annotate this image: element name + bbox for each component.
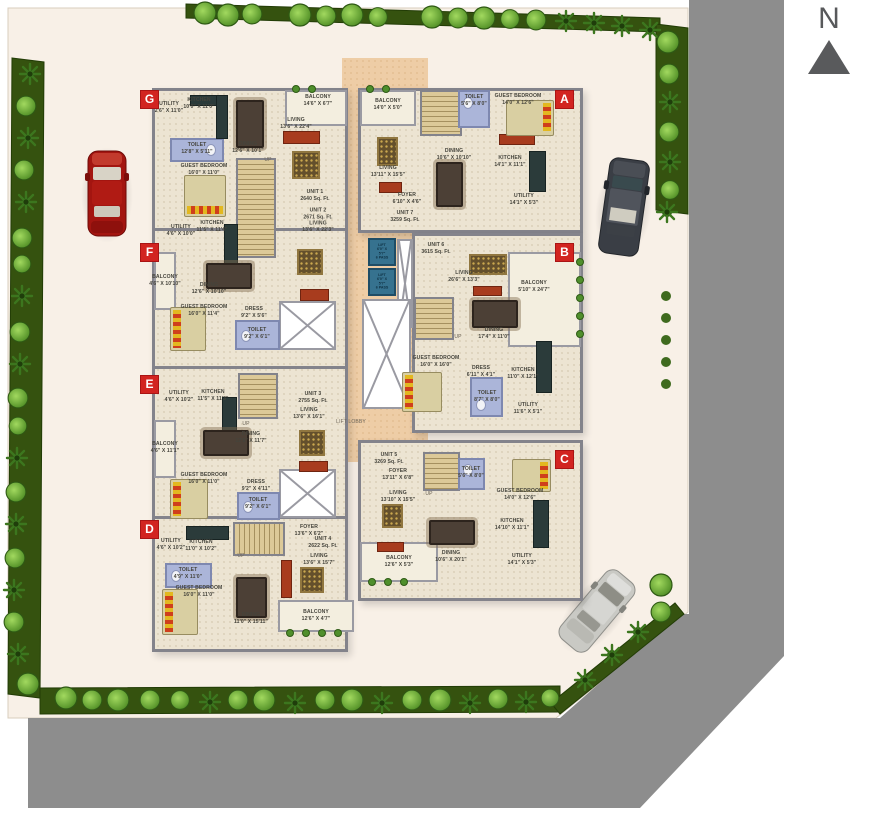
plant (576, 258, 584, 266)
label-b-dress: DRESS 6'11" X 4'1" (467, 366, 495, 379)
plant (384, 578, 392, 586)
living-rug (297, 249, 323, 275)
dining-table (429, 520, 475, 545)
unit-badge-d: D (140, 520, 159, 539)
balcony-b (508, 252, 581, 347)
sofa (300, 289, 329, 301)
label-d-kitchen: KITCHEN 11'0" X 10'2" (185, 540, 216, 553)
label-c-unit: UNIT 5 3269 Sq. Ft. (374, 453, 403, 466)
label-a-toilet: TOILET 5'6" X 8'0" (461, 95, 487, 108)
label-a-dining: DINING 10'6" X 10'10" (437, 149, 472, 162)
label-g-living: LIVING 13'6" X 22'4" (280, 118, 312, 131)
staircase-gf (236, 158, 276, 258)
label-c-living: LIVING 13'10" X 15'5" (381, 491, 416, 504)
label-e-utility: UTILITY 4'6" X 10'2" (165, 391, 194, 404)
dining-table (436, 162, 463, 207)
plant (382, 85, 390, 93)
kitchen-counter (533, 500, 549, 548)
label-c-foyer: FOYER 13'11" X 6'8" (382, 469, 413, 482)
label-d-toilet: TOILET 4'9" X 11'0" (174, 568, 202, 581)
label-f-dress: DRESS 9'2" X 5'6" (241, 307, 267, 320)
label-b-dining: DINING 17'4" X 11'0" (478, 328, 509, 341)
staircase-a (420, 90, 462, 136)
bed (402, 372, 442, 412)
living-rug (300, 567, 324, 593)
unit-badge-g: G (140, 90, 159, 109)
bed-pillows (405, 375, 413, 409)
plant (286, 629, 294, 637)
label-lift-lobby: LIFT LOBBY (336, 420, 366, 426)
label-a-kitchen: KITCHEN 14'1" X 11'1" (494, 156, 525, 169)
bed-pillows (187, 206, 223, 214)
north-label: N (804, 2, 854, 36)
label-up: UP (454, 335, 461, 341)
label-e-guest: GUEST BEDROOM 16'0" X 11'0" (181, 473, 228, 486)
label-b-toilet: TOILET 8'7" X 8'0" (474, 391, 500, 404)
label-f-kitchen: KITCHEN 11'5" X 11'4" (196, 221, 227, 234)
plant (318, 629, 326, 637)
staircase-e (238, 373, 278, 419)
kitchen-counter (529, 151, 546, 192)
label-up: UP (237, 554, 244, 560)
label-up: UP (242, 422, 249, 428)
label-c-kitchen: KITCHEN 14'10" X 11'1" (495, 519, 529, 532)
label-up: UP (425, 492, 432, 498)
kitchen-counter (186, 526, 229, 540)
plant (308, 85, 316, 93)
label-b-guest: GUEST BEDROOM 16'0" X 16'0" (413, 356, 460, 369)
bed (184, 175, 226, 217)
label-d-living: LIVING 13'6" X 15'7" (303, 554, 335, 567)
label-d-balcony: BALCONY 12'6" X 4'7" (302, 610, 331, 623)
unit-badge-e: E (140, 375, 159, 394)
label-e-unit: UNIT 3 2755 Sq. Ft. (298, 392, 327, 405)
label-g-dining: DINING 12'6" X 10'1" (232, 142, 264, 155)
label-e-dining: DINING 12'6" X 11'7" (235, 432, 266, 445)
kitchen-counter (216, 95, 228, 139)
bed-pillows (173, 482, 181, 516)
label-f-dining: DINING 12'6" X 10'10" (192, 283, 227, 296)
staircase-c (423, 452, 460, 491)
plant (368, 578, 376, 586)
sofa (473, 286, 502, 296)
label-up: UP (264, 158, 271, 164)
unit-badge-f: F (140, 243, 159, 262)
label-b-unit: UNIT 6 3615 Sq. Ft. (421, 243, 450, 256)
label-c-guest: GUEST BEDROOM 14'0" X 12'6" (497, 489, 544, 502)
sofa (281, 560, 292, 598)
living-rug (292, 151, 320, 179)
north-indicator: N (804, 2, 854, 74)
unit-badge-b: B (555, 243, 574, 262)
plant (576, 294, 584, 302)
label-f-toilet: TOILET 9'2" X 6'1" (244, 328, 270, 341)
bed-pillows (540, 462, 548, 489)
label-b-utility: UTILITY 11'6" X 5'1" (514, 403, 542, 416)
label-c-balcony: BALCONY 12'6" X 5'3" (385, 556, 414, 569)
sofa (283, 131, 320, 144)
lift-label: LIFT 6'0" X 5'7" 6 PASS (375, 244, 389, 261)
unit-badge-c: C (555, 450, 574, 469)
label-e-kitchen: KITCHEN 11'5" X 11'3" (197, 390, 228, 403)
lift-1: LIFT 6'0" X 5'7" 6 PASS (368, 238, 396, 266)
staircase-d (233, 522, 285, 556)
plant (576, 276, 584, 284)
label-g-toilet: TOILET 12'8" X 5'11" (181, 143, 212, 156)
plant (302, 629, 310, 637)
dining-table (472, 300, 518, 328)
label-c-utility: UTILITY 14'1" X 5'3" (508, 554, 537, 567)
staircase-b (414, 297, 454, 340)
bed (512, 459, 551, 492)
label-c-dining: DINING 10'6" X 20'1" (435, 551, 467, 564)
label-b-kitchen: KITCHEN 11'0" X 12'1" (507, 368, 538, 381)
label-a-foyer: FOYER 6'10" X 4'6" (393, 193, 422, 206)
label-c-toilet: TOILET 5'6" X 8'0" (458, 467, 484, 480)
plant (366, 85, 374, 93)
label-d-foyer: FOYER 13'6" X 6'2" (295, 525, 324, 538)
label-a-living: LIVING 13'11" X 15'5" (371, 166, 405, 179)
living-rug (299, 430, 325, 456)
plant (576, 330, 584, 338)
plant (576, 312, 584, 320)
car-red (81, 147, 133, 243)
label-g-guest: GUEST BEDROOM 16'0" X 11'0" (181, 164, 228, 177)
stair-void (279, 301, 336, 350)
label-d-unit: UNIT 4 2622 Sq. Ft. (308, 537, 337, 550)
label-e-toilet: TOILET 9'2" X 6'1" (245, 498, 271, 511)
label-e-dress: DRESS 9'2" X 4'11" (242, 480, 270, 493)
stair-void (279, 469, 336, 518)
label-e-living: LIVING 13'6" X 16'1" (293, 408, 325, 421)
site-plan: LIFT 6'0" X 5'7" 6 PASS LIFT 6'0" X 5'7"… (0, 0, 869, 815)
label-g-unit: UNIT 1 2640 Sq. Ft. (300, 190, 329, 203)
label-g-kitchen: KITCHEN 10'0" X 11'0" (183, 98, 214, 111)
label-g-utility: UTILITY 2'6" X 11'0" (155, 102, 183, 115)
living-rug (377, 137, 398, 166)
plant (334, 629, 342, 637)
lift-label: LIFT 6'0" X 5'7" 6 PASS (375, 274, 389, 291)
label-a-unit: UNIT 7 3259 Sq. Ft. (390, 211, 419, 224)
sofa (377, 542, 404, 552)
label-a-balcony: BALCONY 14'0" X 5'0" (374, 99, 403, 112)
label-a-utility: UTILITY 14'1" X 5'3" (510, 194, 539, 207)
label-b-living: LIVING 26'6" X 13'3" (448, 271, 480, 284)
plant (292, 85, 300, 93)
label-d-dining: DINING 11'0" X 15'11" (234, 613, 268, 626)
sofa (299, 461, 328, 472)
lift-2: LIFT 6'0" X 5'7" 6 PASS (368, 268, 396, 296)
sofa (379, 182, 402, 193)
label-a-guest: GUEST BEDROOM 14'0" X 12'6" (495, 94, 542, 107)
partition-wall (155, 366, 345, 369)
label-d-utility: UTILITY 4'6" X 10'2" (157, 539, 186, 552)
label-g-balcony: BALCONY 14'6" X 6'7" (304, 95, 333, 108)
label-f-utility: UTILITY 4'6" X 10'0" (167, 225, 196, 238)
label-e-balcony: BALCONY 4'6" X 11'1" (151, 442, 179, 455)
bed-pillows (165, 592, 173, 632)
north-arrow-icon (808, 40, 850, 74)
label-f-balcony: BALCONY 4'6" X 10'10" (149, 275, 181, 288)
living-rug (382, 504, 403, 528)
bed-pillows (543, 103, 551, 131)
unit-badge-a: A (555, 90, 574, 109)
label-d-guest: GUEST BEDROOM 16'0" X 11'0" (176, 586, 223, 599)
plant (400, 578, 408, 586)
label-b-balcony: BALCONY 5'10" X 24'7" (518, 281, 550, 294)
label-f-unit: UNIT 2 2671 Sq. Ft. LIVING 13'6" X 22'3" (302, 208, 334, 234)
label-f-guest: GUEST BEDROOM 16'0" X 11'4" (181, 305, 228, 318)
